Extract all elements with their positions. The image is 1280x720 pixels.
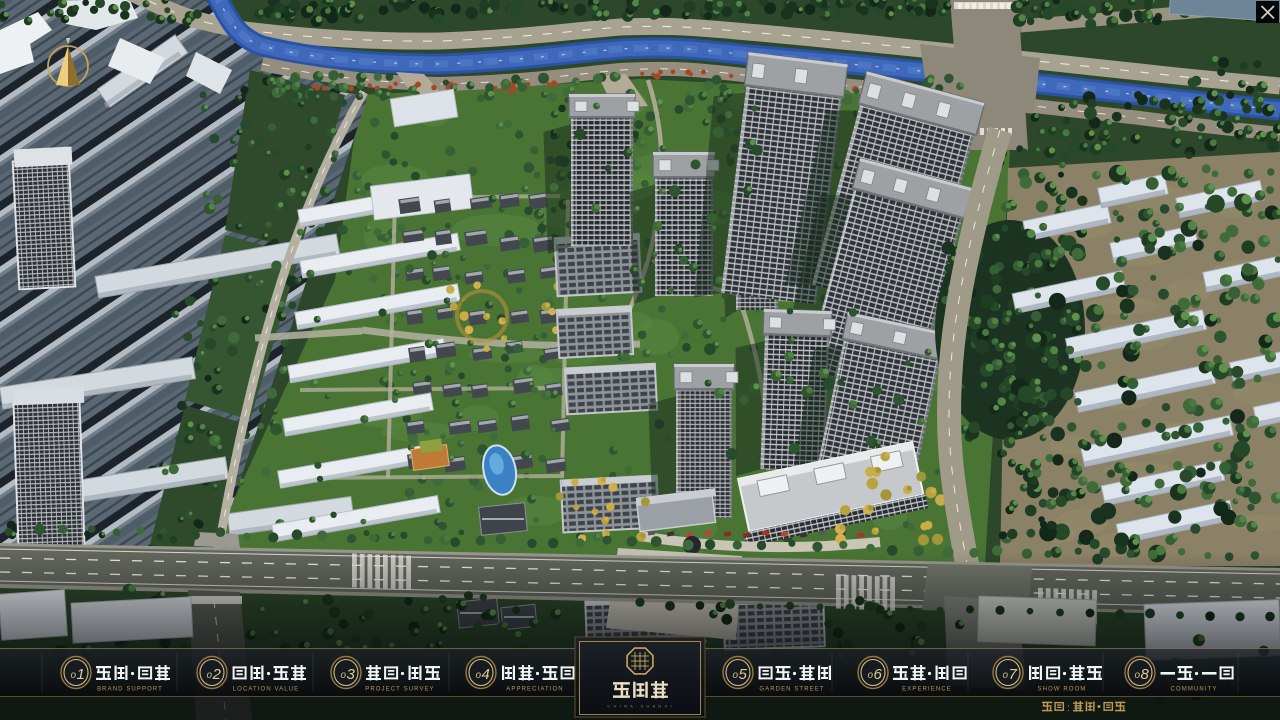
svg-text:EXPERIENCE: EXPERIENCE xyxy=(902,687,952,693)
svg-text:C H I N A · S H A N X I: C H I N A · S H A N X I xyxy=(607,704,672,709)
svg-text:LOCATION VALUE: LOCATION VALUE xyxy=(233,687,300,693)
svg-text:PROJECT SURVEY: PROJECT SURVEY xyxy=(365,687,435,693)
svg-text:5: 5 xyxy=(739,666,748,683)
svg-text:8: 8 xyxy=(1141,666,1150,683)
svg-text::: : xyxy=(1067,703,1070,714)
svg-text:4: 4 xyxy=(482,666,490,683)
svg-text:BRAND SUPPORT: BRAND SUPPORT xyxy=(97,687,163,693)
svg-text:APPRECIATION: APPRECIATION xyxy=(506,687,563,693)
svg-text:COMMUNITY: COMMUNITY xyxy=(1171,687,1218,693)
svg-text:1: 1 xyxy=(77,666,85,683)
svg-text:3: 3 xyxy=(347,666,356,683)
svg-text:7: 7 xyxy=(1009,666,1018,683)
svg-text:6: 6 xyxy=(874,666,883,683)
svg-text:2: 2 xyxy=(212,666,222,683)
svg-text:SHOW ROOM: SHOW ROOM xyxy=(1038,687,1087,693)
svg-text:GARDEN STREET: GARDEN STREET xyxy=(759,687,824,693)
